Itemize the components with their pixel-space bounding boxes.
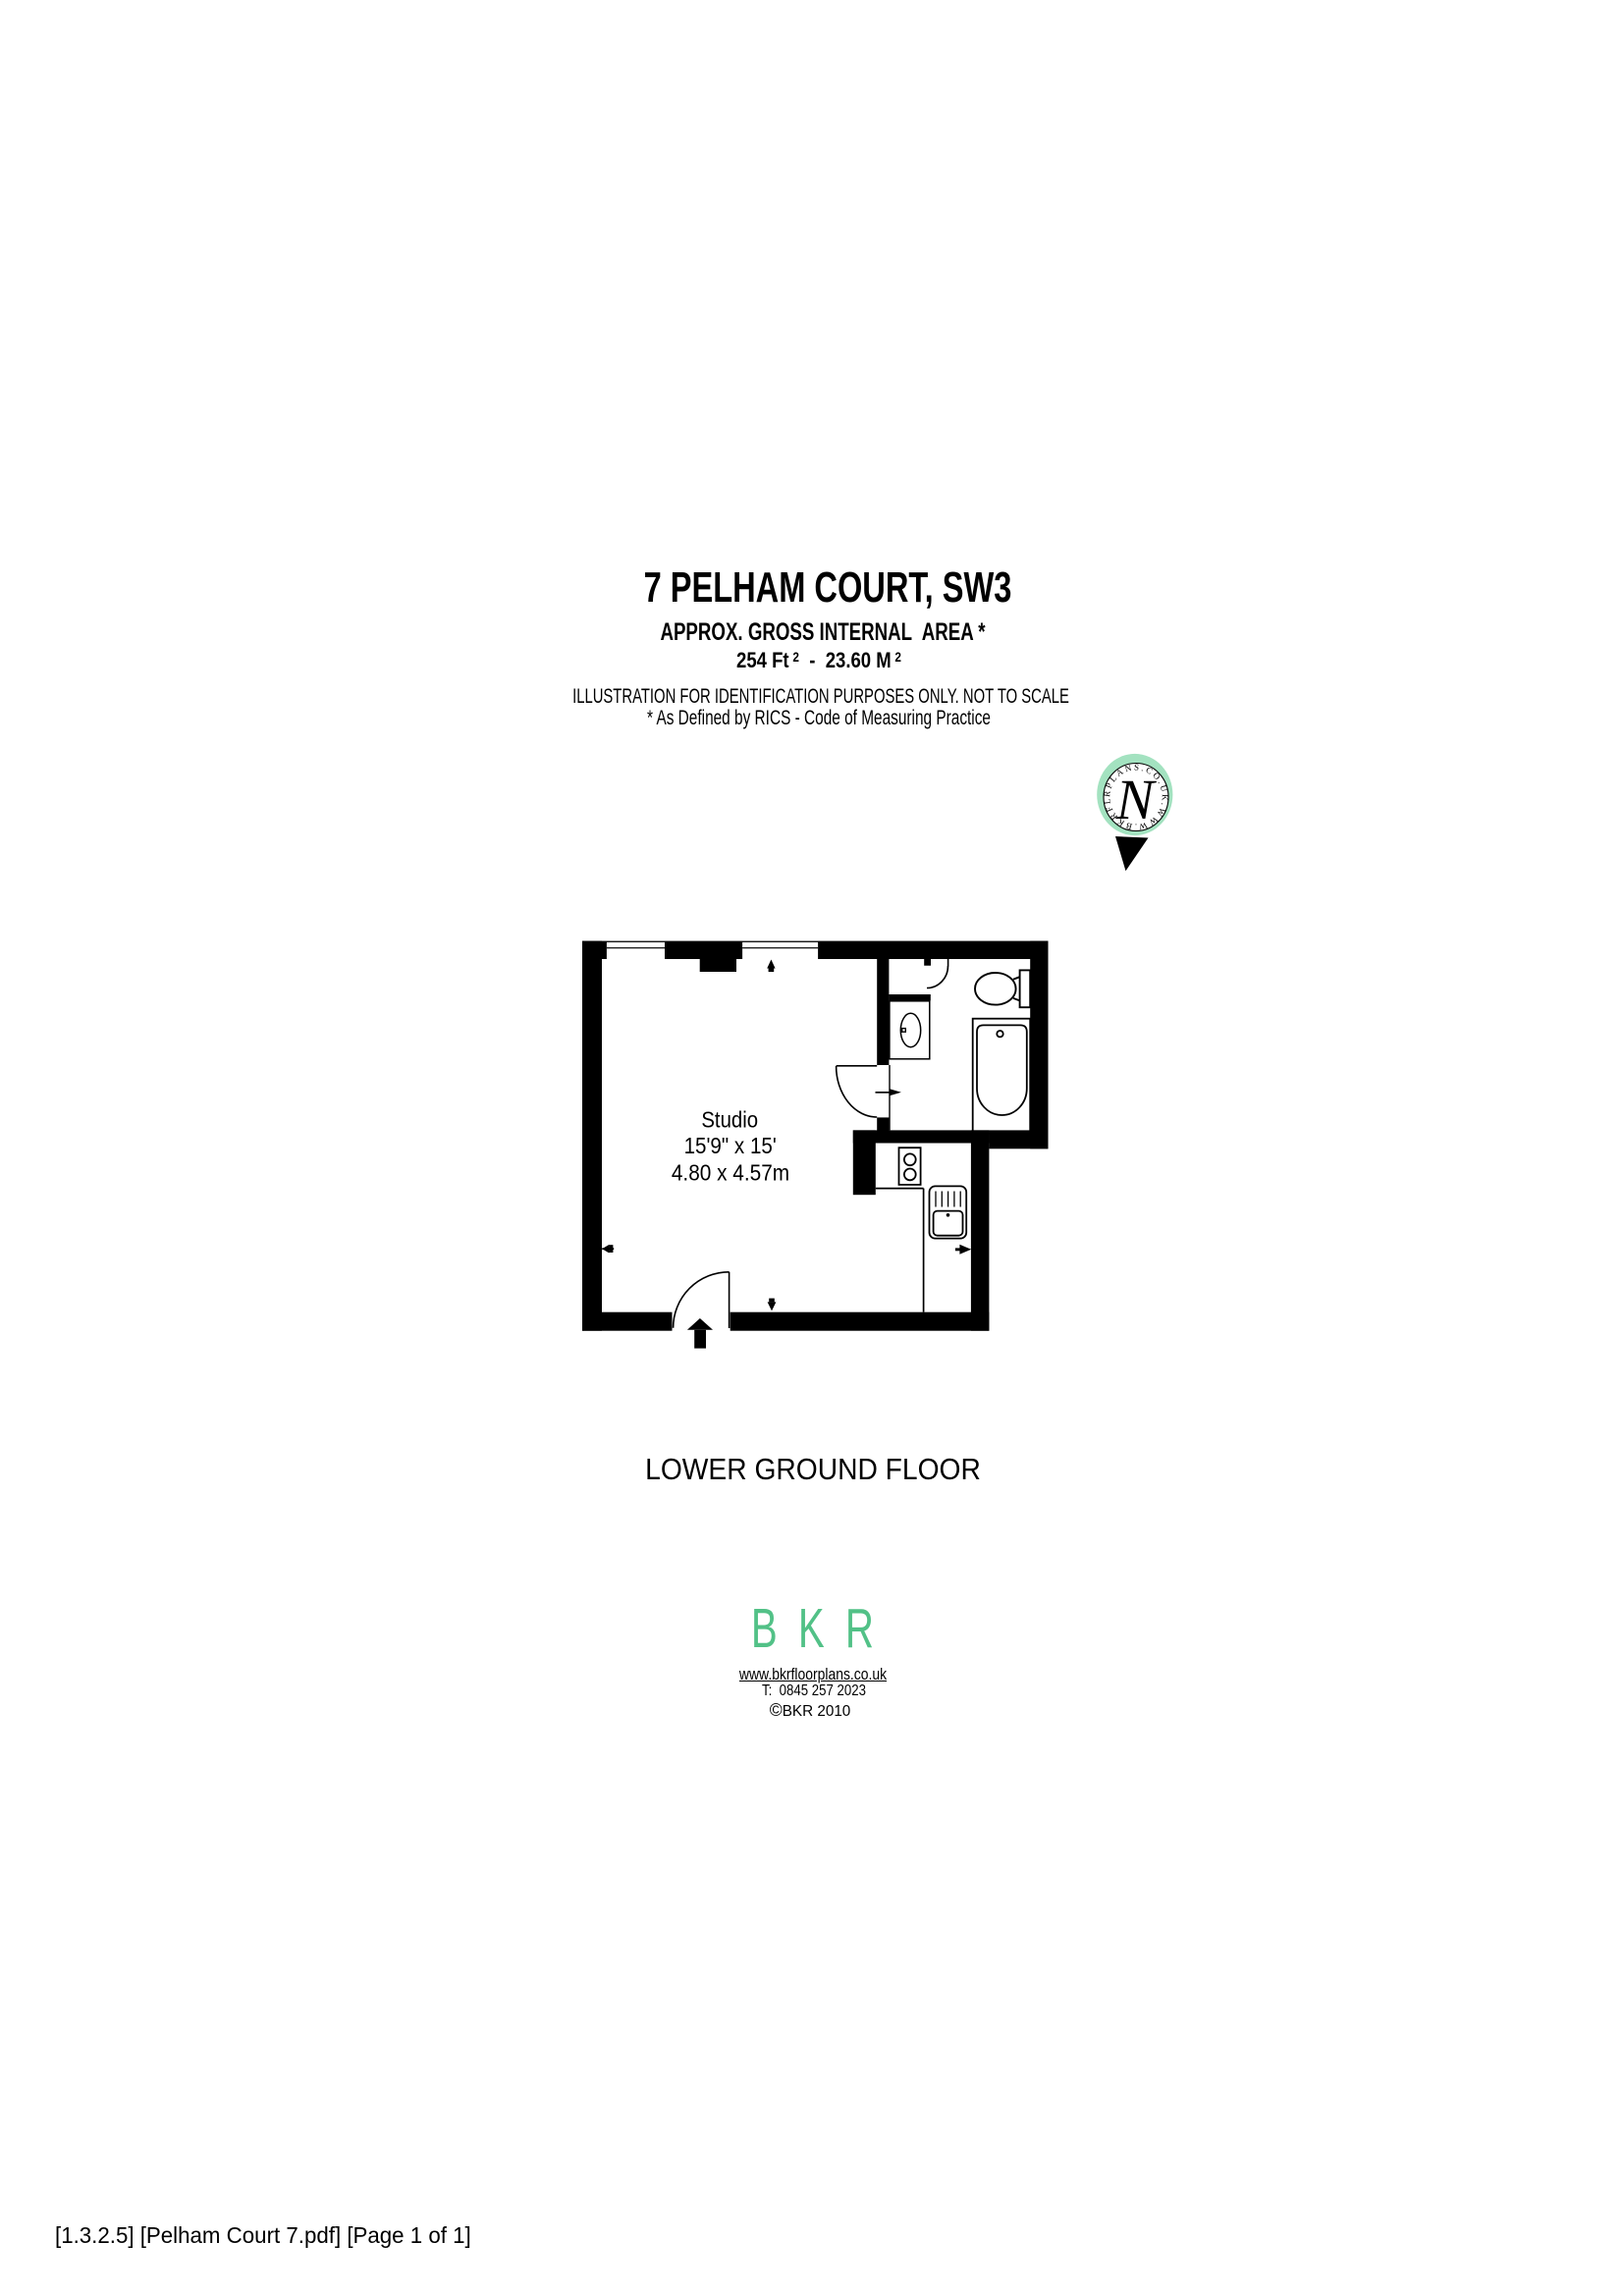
svg-text:4.80 x 4.57m: 4.80 x 4.57m [672, 1160, 789, 1186]
svg-text:Studio: Studio [701, 1106, 758, 1132]
svg-text:15'9" x 15': 15'9" x 15' [684, 1133, 777, 1158]
svg-text:N: N [1115, 768, 1158, 831]
